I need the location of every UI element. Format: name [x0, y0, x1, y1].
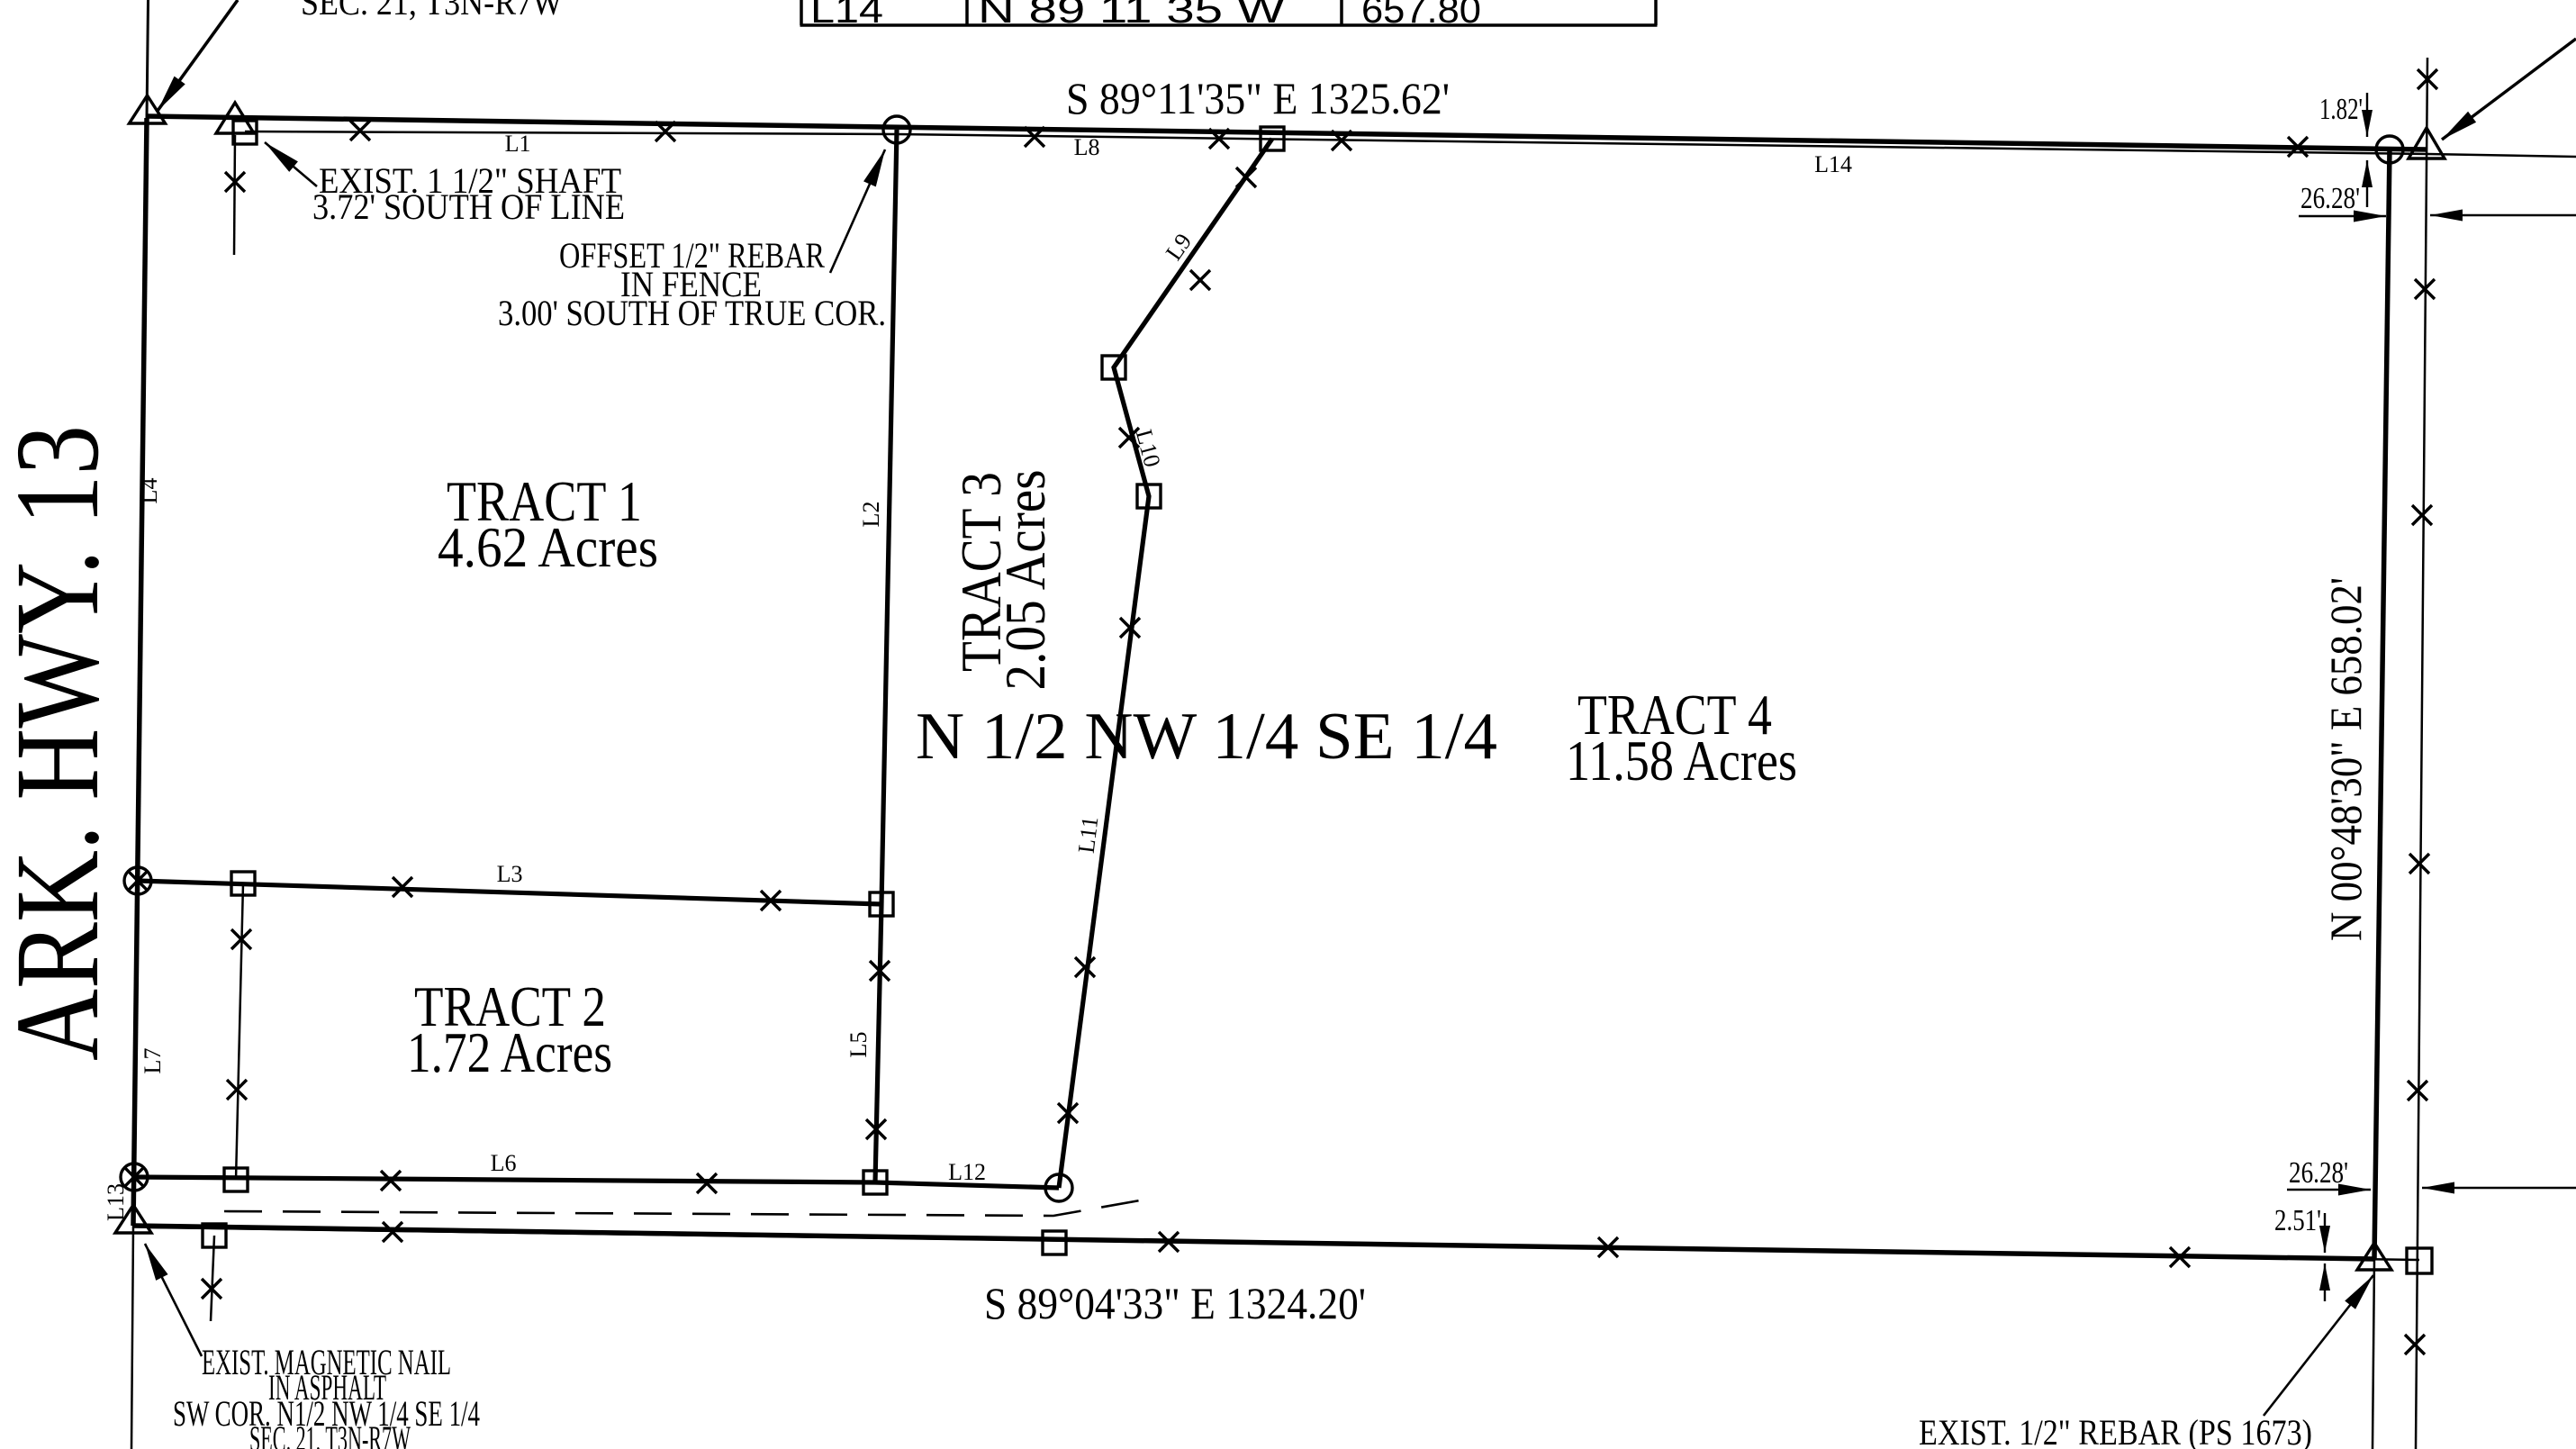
svg-text:3.72' SOUTH OF LINE: 3.72' SOUTH OF LINE — [312, 186, 625, 227]
svg-text:4.62 Acres: 4.62 Acres — [438, 516, 658, 579]
svg-text:SEC. 21, T3N-R7W: SEC. 21, T3N-R7W — [249, 1418, 411, 1449]
svg-text:L13: L13 — [103, 1183, 129, 1221]
svg-text:L8: L8 — [1074, 134, 1100, 160]
svg-text:3.00' SOUTH OF TRUE COR.: 3.00' SOUTH OF TRUE COR. — [498, 293, 886, 333]
svg-text:26.28': 26.28' — [2300, 182, 2360, 215]
svg-text:N 1/2 NW 1/4 SE 1/4: N 1/2 NW 1/4 SE 1/4 — [916, 700, 1497, 774]
svg-text:L11: L11 — [1073, 815, 1104, 855]
svg-text:2.05 Acres: 2.05 Acres — [994, 470, 1057, 691]
svg-text:11.58 Acres: 11.58 Acres — [1566, 729, 1797, 792]
svg-text:ARK. HWY. 13: ARK. HWY. 13 — [0, 425, 123, 1061]
svg-text:SEC. 21, T3N-R7W: SEC. 21, T3N-R7W — [301, 0, 563, 23]
svg-text:L6: L6 — [491, 1150, 517, 1176]
svg-text:L14: L14 — [1814, 151, 1852, 177]
svg-text:L1: L1 — [505, 131, 531, 157]
svg-text:1.82': 1.82' — [2319, 93, 2363, 126]
svg-text:L5: L5 — [845, 1032, 872, 1058]
svg-text:26.28': 26.28' — [2289, 1156, 2348, 1190]
svg-text:L3: L3 — [497, 861, 523, 887]
svg-text:S 89°11'35" E 1325.62': S 89°11'35" E 1325.62' — [1066, 73, 1450, 123]
svg-text:L4: L4 — [136, 478, 162, 504]
svg-text:S 89°04'33" E 1324.20': S 89°04'33" E 1324.20' — [984, 1278, 1366, 1328]
svg-text:2.51': 2.51' — [2274, 1204, 2321, 1237]
svg-text:1.72 Acres: 1.72 Acres — [407, 1021, 612, 1084]
svg-text:L14: L14 — [810, 0, 883, 31]
svg-text:N 89 11 35 W: N 89 11 35 W — [978, 0, 1285, 31]
svg-text:EXIST. 1/2" REBAR (PS 1673): EXIST. 1/2" REBAR (PS 1673) — [1919, 1412, 2312, 1449]
svg-text:N 00°48'30" E 658.02': N 00°48'30" E 658.02' — [2320, 577, 2371, 941]
svg-text:L7: L7 — [140, 1048, 166, 1074]
svg-text:L2: L2 — [858, 502, 884, 528]
svg-text:L12: L12 — [948, 1159, 986, 1185]
svg-text:657.80: 657.80 — [1361, 0, 1481, 31]
